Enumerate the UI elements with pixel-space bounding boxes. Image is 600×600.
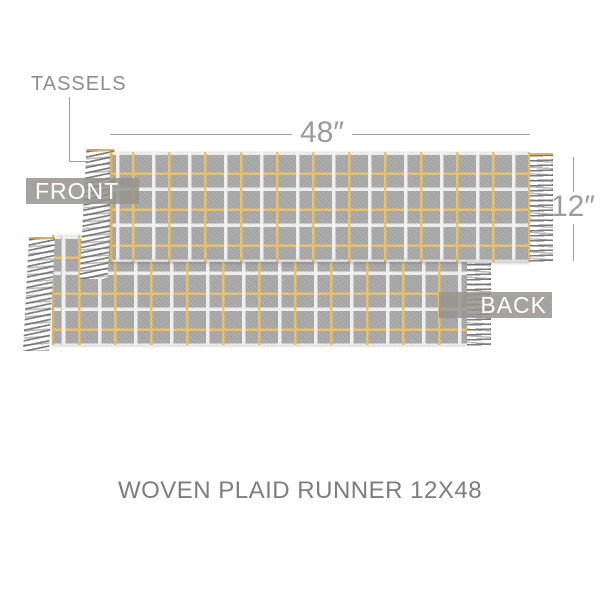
width-dimension-line-left — [110, 134, 292, 135]
back-badge: BACK — [439, 292, 552, 318]
tassels-label: TASSELS — [31, 73, 127, 96]
front-badge-label: FRONT — [35, 178, 119, 204]
front-badge: FRONT — [26, 178, 139, 204]
back-badge-label: BACK — [480, 292, 547, 318]
height-dimension-label: 12″ — [549, 190, 597, 224]
back-runner-left-tassels — [23, 237, 55, 351]
height-dimension-line-bottom — [573, 224, 574, 261]
tassels-pointer-horizontal-line — [69, 161, 89, 162]
tassels-pointer-vertical-line — [69, 97, 70, 162]
width-dimension-line-right — [352, 134, 530, 135]
product-diagram: FRONT BACK TASSELS 48″ 12″ WOVEN PLAID R… — [0, 0, 600, 600]
front-runner-body — [110, 152, 530, 262]
product-title: WOVEN PLAID RUNNER 12X48 — [0, 477, 600, 505]
height-dimension-line-top — [573, 157, 574, 192]
width-dimension-label: 48″ — [285, 116, 359, 150]
